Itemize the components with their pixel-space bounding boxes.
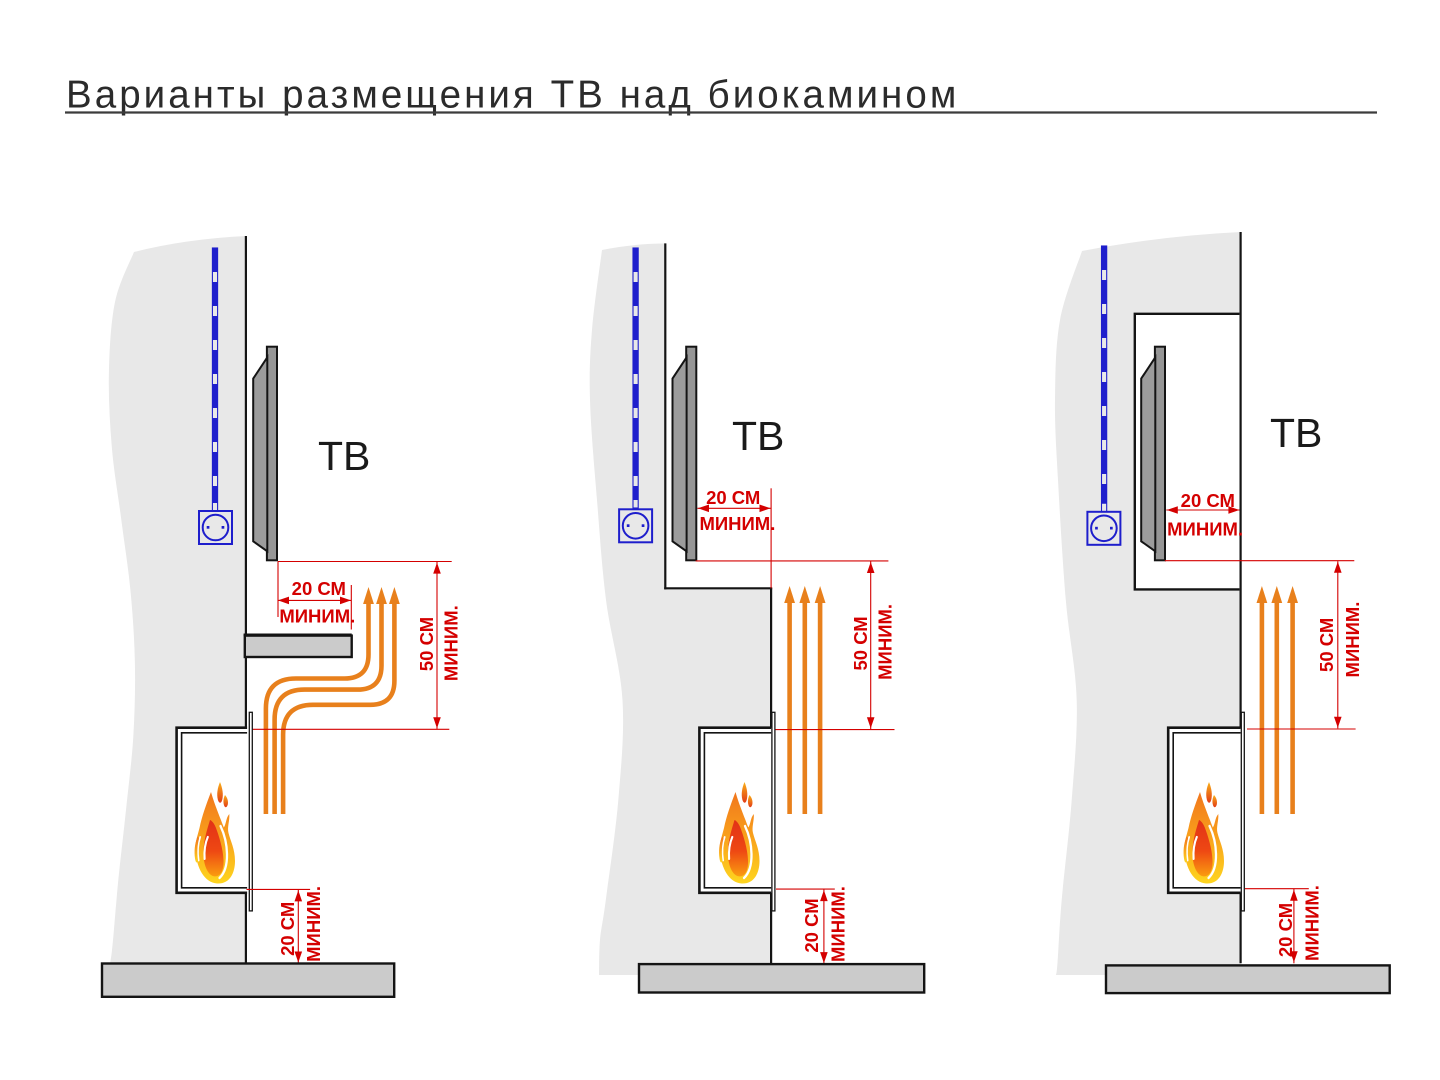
svg-text:20 СМ: 20 СМ [277, 902, 298, 956]
svg-text:20 СМ: 20 СМ [1275, 903, 1296, 957]
svg-text:Варианты размещения ТВ над био: Варианты размещения ТВ над биокамином [66, 74, 959, 117]
svg-text:50 СМ: 50 СМ [416, 617, 437, 671]
svg-text:МИНИМ.: МИНИМ. [699, 513, 775, 534]
svg-text:МИНИМ.: МИНИМ. [279, 606, 355, 627]
svg-text:50 СМ: 50 СМ [850, 616, 871, 670]
svg-text:20 СМ: 20 СМ [706, 487, 760, 508]
svg-text:МИНИМ.: МИНИМ. [828, 886, 849, 962]
svg-text:ТВ: ТВ [732, 413, 784, 459]
svg-text:20 СМ: 20 СМ [1181, 490, 1235, 511]
svg-text:ТВ: ТВ [1270, 410, 1322, 456]
svg-text:50 СМ: 50 СМ [1316, 618, 1337, 672]
svg-text:МИНИМ.: МИНИМ. [1301, 885, 1322, 961]
svg-text:МИНИМ.: МИНИМ. [1167, 519, 1243, 540]
svg-text:ТВ: ТВ [318, 433, 370, 479]
svg-text:МИНИМ.: МИНИМ. [1342, 602, 1363, 678]
svg-text:20 СМ: 20 СМ [292, 578, 346, 599]
svg-text:20 СМ: 20 СМ [801, 898, 822, 952]
svg-text:МИНИМ.: МИНИМ. [440, 605, 461, 681]
svg-text:МИНИМ.: МИНИМ. [303, 886, 324, 962]
svg-text:МИНИМ.: МИНИМ. [874, 604, 895, 680]
